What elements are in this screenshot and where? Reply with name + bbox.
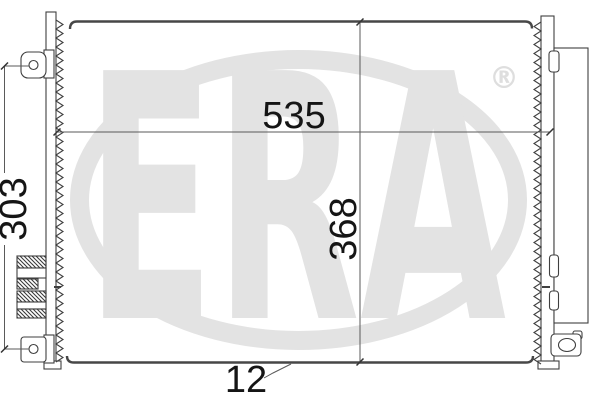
fitting-flange-hatched bbox=[17, 291, 46, 302]
drier-top-fitting bbox=[549, 51, 559, 72]
left-fins-zigzag bbox=[56, 20, 63, 362]
fitting-flange-hatched bbox=[17, 256, 46, 268]
drier-sight-glass-lower bbox=[550, 291, 559, 310]
fitting-body bbox=[17, 268, 46, 278]
fitting-stub-hatched bbox=[17, 279, 38, 289]
mount-span-dimension-label: 303 bbox=[0, 177, 35, 240]
left-pipe-fittings bbox=[17, 256, 46, 318]
depth-dimension-label: 12 bbox=[225, 359, 267, 400]
registered-trademark-icon: ® bbox=[489, 61, 519, 96]
bottom-right-mounting-bracket bbox=[551, 331, 582, 356]
right-fins-zigzag bbox=[534, 22, 541, 364]
fitting-body bbox=[17, 302, 46, 309]
fitting-flange-hatched bbox=[17, 309, 46, 318]
top-left-mounting-bracket bbox=[21, 50, 54, 78]
era-watermark: ERA ® bbox=[80, 3, 520, 399]
bracket-hole-icon bbox=[29, 345, 38, 354]
watermark-brand-text: ERA bbox=[86, 3, 508, 399]
right-tank-foot bbox=[538, 361, 559, 369]
receiver-drier bbox=[554, 48, 588, 323]
width-dimension-label: 535 bbox=[262, 95, 325, 137]
drier-sight-glass-upper bbox=[550, 255, 559, 277]
bracket-slot-icon bbox=[559, 339, 576, 352]
condenser-technical-drawing: ERA ® bbox=[0, 0, 600, 400]
technical-drawing-svg: ERA ® bbox=[0, 0, 600, 400]
bracket-hole-icon bbox=[29, 61, 38, 70]
height-dimension-label: 368 bbox=[323, 197, 365, 260]
